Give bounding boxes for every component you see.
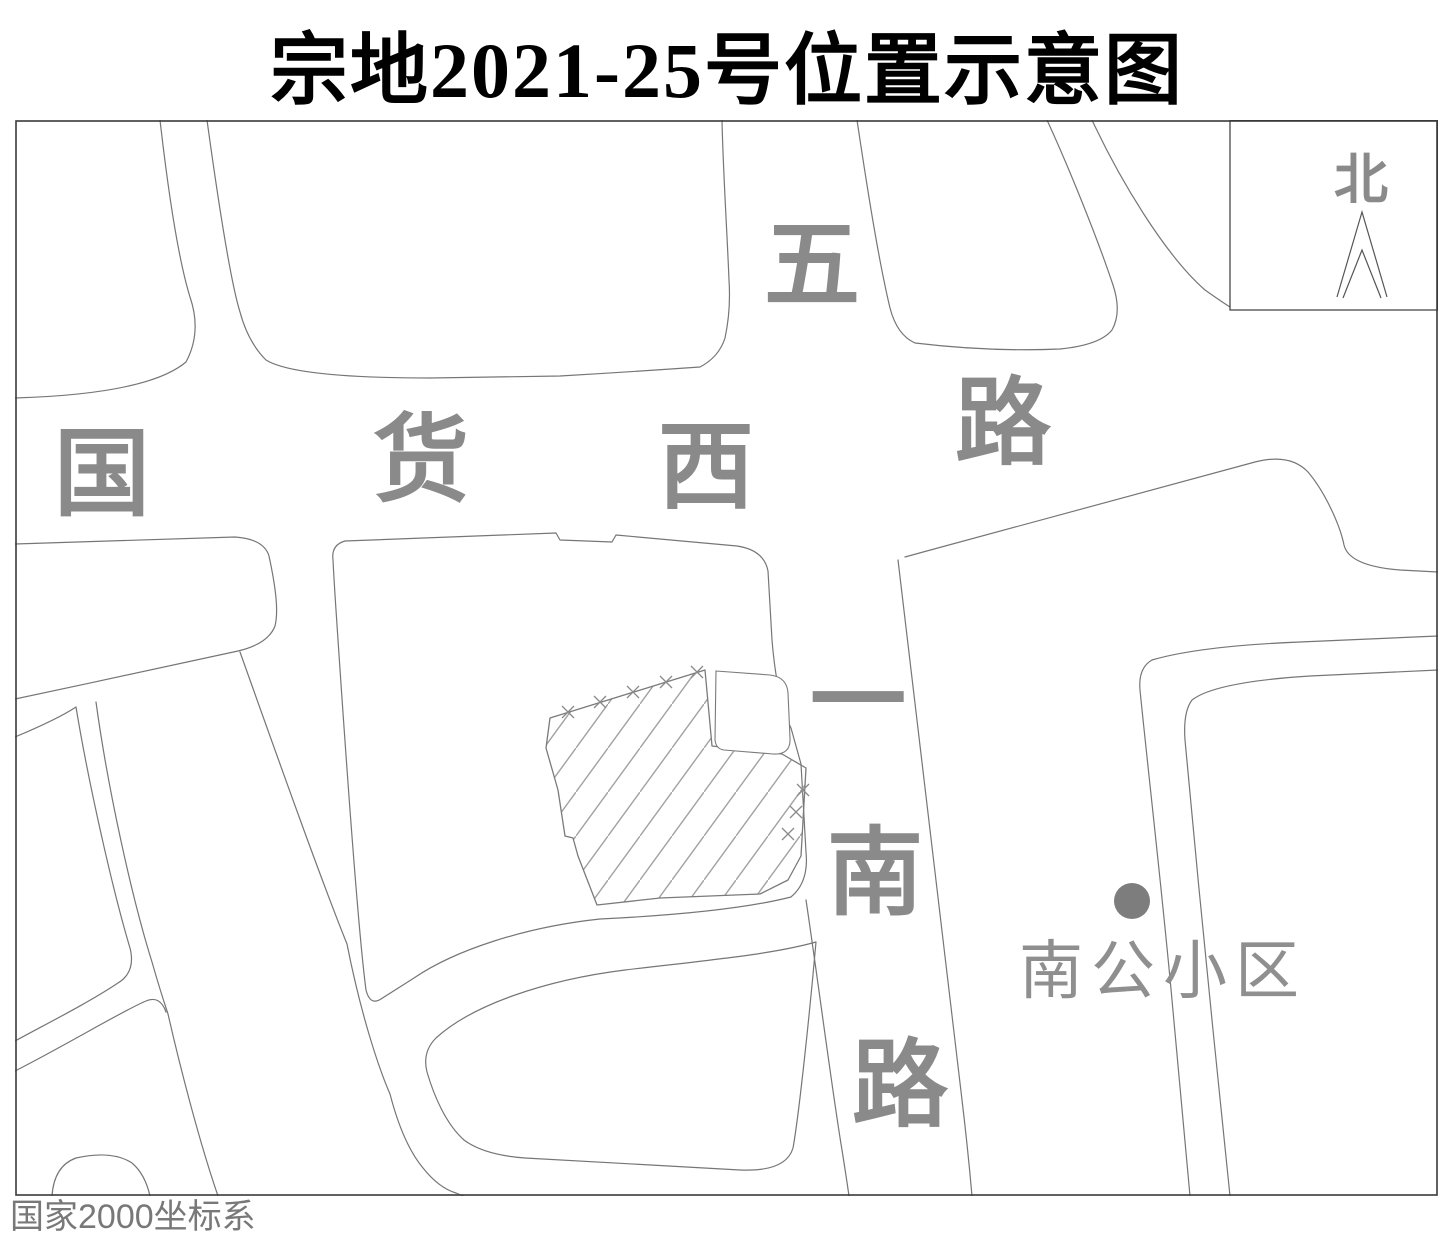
map-border [16,121,1437,1195]
poi-label-nangong: 南公小区 [1019,940,1307,1004]
road-label-guo: 国 [54,427,150,523]
road-network-lines [15,120,1438,1196]
parcel-2021-25 [546,666,809,905]
road-label-nan: 南 [827,826,923,922]
road-label-yi: 一 [810,654,906,750]
north-box [1230,120,1438,310]
parcel-cutout-block [715,671,790,754]
road-label-lu-h: 路 [955,376,1051,472]
coordinate-system-note: 国家2000坐标系 [10,1200,256,1234]
north-label: 北 [1334,153,1388,207]
page-title: 宗地2021-25号位置示意图 [0,8,1454,120]
road-label-huo: 货 [373,413,469,509]
map-canvas: 国 货 西 路 五 一 南 路 南公小区 北 [15,120,1438,1196]
poi-dot [1114,883,1150,919]
road-label-xi: 西 [658,420,754,516]
road-label-wu: 五 [764,218,860,314]
north-arrow [1230,120,1438,310]
map-linework [15,120,1438,1196]
road-label-lu-v: 路 [852,1038,948,1134]
